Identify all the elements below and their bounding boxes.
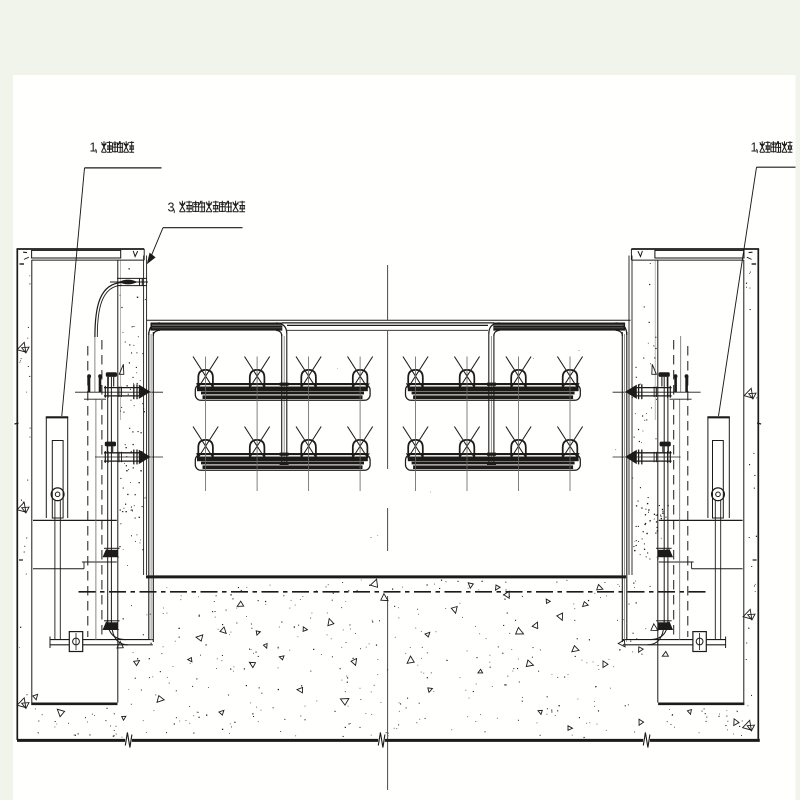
svg-text:1: 1 [90,141,97,155]
svg-text:3: 3 [168,201,175,215]
svg-text:1: 1 [751,141,758,155]
